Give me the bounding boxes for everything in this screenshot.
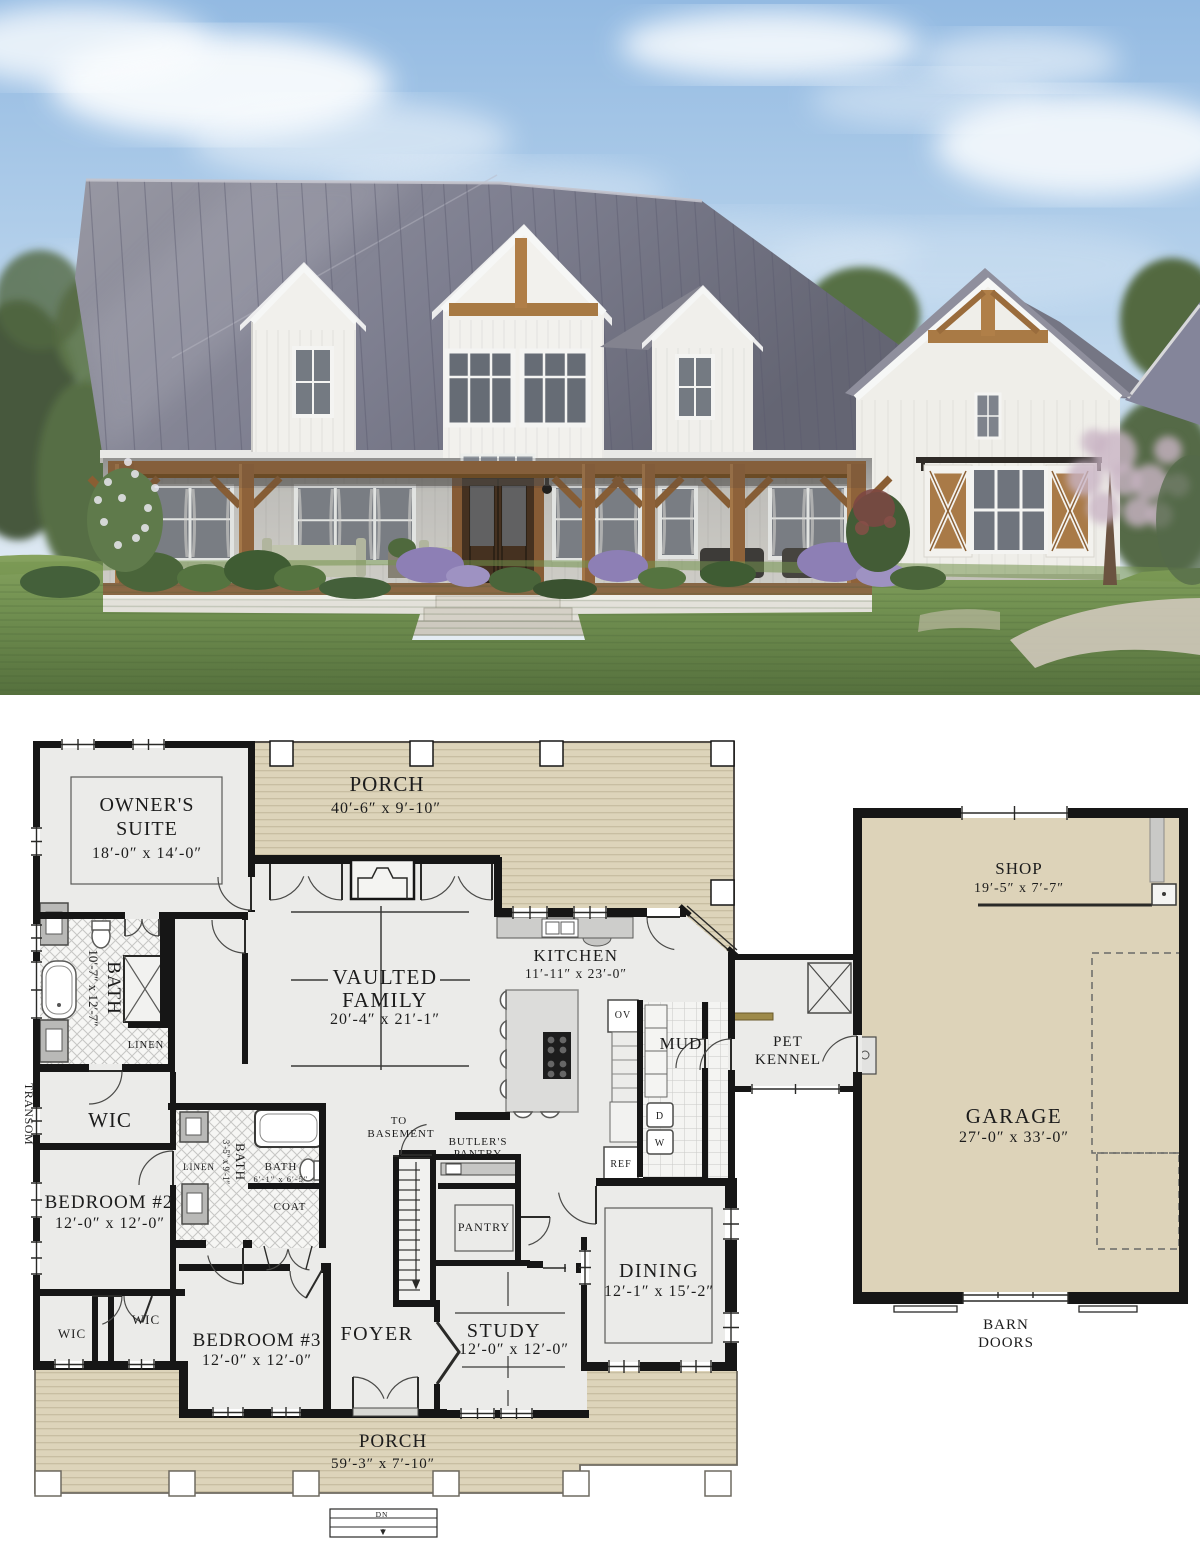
svg-text:TRANSOM: TRANSOM	[22, 1083, 36, 1145]
svg-text:STUDY: STUDY	[467, 1320, 541, 1342]
svg-text:DINING: DINING	[619, 1260, 699, 1282]
svg-text:VAULTED: VAULTED	[332, 965, 437, 989]
svg-text:20′-4″ x 21′-1″: 20′-4″ x 21′-1″	[330, 1011, 440, 1028]
svg-text:FOYER: FOYER	[340, 1323, 413, 1345]
svg-text:6′-1″ x 6′-5″: 6′-1″ x 6′-5″	[254, 1174, 309, 1184]
svg-text:40′-6″ x 9′-10″: 40′-6″ x 9′-10″	[331, 800, 441, 817]
svg-text:REF: REF	[610, 1159, 631, 1170]
svg-text:PORCH: PORCH	[359, 1431, 427, 1452]
svg-text:TO: TO	[391, 1115, 407, 1127]
svg-text:MUD: MUD	[660, 1034, 703, 1053]
svg-text:OWNER'S: OWNER'S	[99, 794, 194, 816]
svg-text:18′-0″ x 14′-0″: 18′-0″ x 14′-0″	[92, 845, 202, 862]
svg-text:FAMILY: FAMILY	[342, 988, 428, 1012]
svg-text:W: W	[655, 1138, 665, 1149]
svg-text:12′-0″ x 12′-0″: 12′-0″ x 12′-0″	[55, 1215, 165, 1232]
svg-text:LINEN: LINEN	[128, 1040, 165, 1051]
svg-text:KENNEL: KENNEL	[755, 1052, 821, 1068]
svg-text:BEDROOM #3: BEDROOM #3	[193, 1330, 322, 1351]
svg-text:COAT: COAT	[274, 1201, 307, 1213]
svg-text:3′-5″ x 9′-1″: 3′-5″ x 9′-1″	[221, 1140, 231, 1185]
svg-text:BATH: BATH	[265, 1161, 298, 1173]
svg-text:12′-0″ x 12′-0″: 12′-0″ x 12′-0″	[459, 1341, 569, 1358]
svg-text:DOORS: DOORS	[978, 1335, 1034, 1351]
svg-text:11′-11″ x 23′-0″: 11′-11″ x 23′-0″	[525, 966, 627, 981]
svg-text:WIC: WIC	[88, 1108, 132, 1132]
svg-text:59′-3″ x 7′-10″: 59′-3″ x 7′-10″	[331, 1456, 435, 1472]
svg-text:WIC: WIC	[132, 1312, 160, 1327]
svg-text:GARAGE: GARAGE	[966, 1104, 1063, 1128]
svg-text:27′-0″ x 33′-0″: 27′-0″ x 33′-0″	[959, 1129, 1069, 1146]
svg-text:PET: PET	[773, 1034, 803, 1050]
svg-text:WIC: WIC	[58, 1326, 86, 1341]
svg-text:12′-1″ x 15′-2″: 12′-1″ x 15′-2″	[604, 1283, 714, 1300]
svg-text:PORCH: PORCH	[349, 772, 424, 796]
svg-text:OV: OV	[615, 1010, 631, 1021]
svg-text:SUITE: SUITE	[116, 818, 178, 840]
svg-text:DN: DN	[376, 1510, 389, 1519]
svg-text:PANTRY: PANTRY	[454, 1148, 502, 1160]
svg-text:LINEN: LINEN	[183, 1162, 215, 1172]
svg-text:BARN: BARN	[983, 1317, 1029, 1333]
svg-text:D: D	[656, 1111, 664, 1122]
svg-text:BASEMENT: BASEMENT	[367, 1128, 434, 1140]
svg-text:PANTRY: PANTRY	[458, 1220, 510, 1234]
svg-text:12′-0″ x 12′-0″: 12′-0″ x 12′-0″	[202, 1352, 312, 1369]
svg-text:BATH: BATH	[103, 961, 124, 1015]
svg-text:BEDROOM #2: BEDROOM #2	[45, 1192, 174, 1213]
svg-text:BUTLER'S: BUTLER'S	[449, 1136, 508, 1148]
svg-text:19′-5″ x 7′-7″: 19′-5″ x 7′-7″	[974, 881, 1064, 896]
svg-text:KITCHEN: KITCHEN	[533, 946, 618, 965]
svg-text:SHOP: SHOP	[995, 859, 1042, 878]
svg-text:10′-7″ x 12′-7″: 10′-7″ x 12′-7″	[86, 949, 101, 1026]
svg-text:BATH: BATH	[233, 1143, 248, 1181]
